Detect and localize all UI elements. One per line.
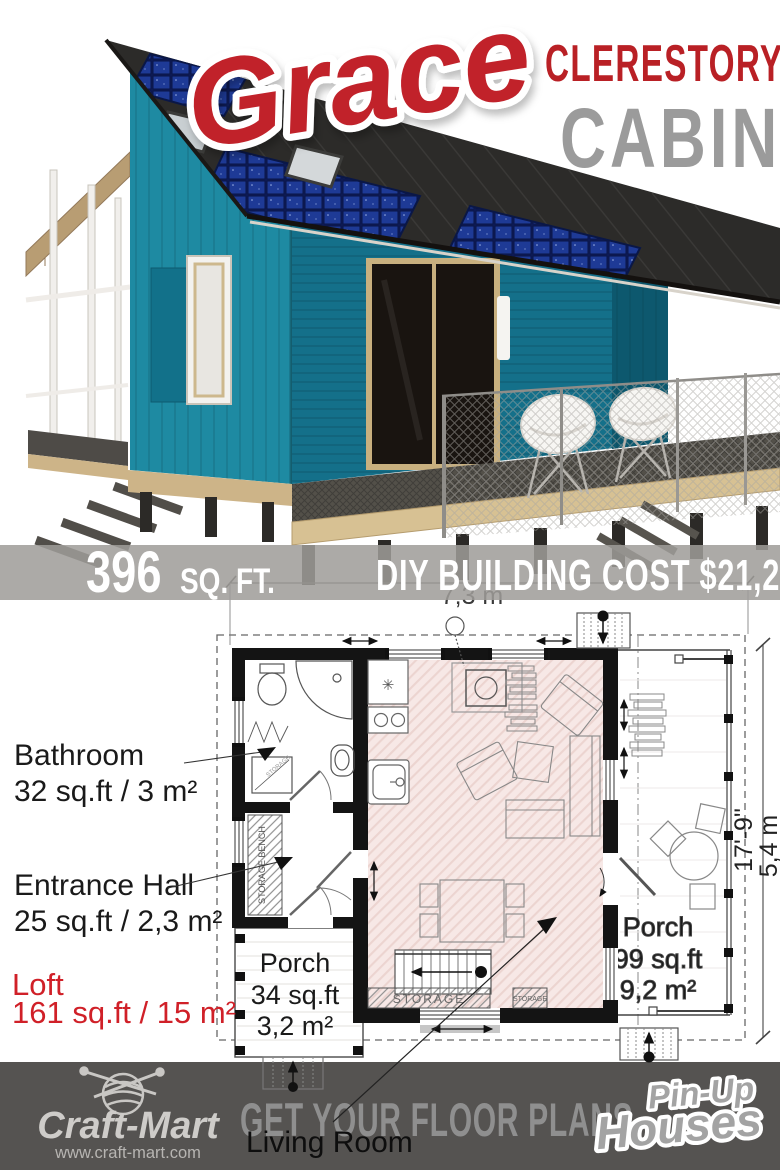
roof-outline-dashed	[217, 635, 745, 1040]
wood-stove	[446, 617, 522, 712]
dimension-height: 17'-9" 5,4 m	[730, 638, 780, 1044]
stove-icon	[368, 707, 408, 733]
loft-name: Loft	[12, 967, 64, 1002]
storage-strips: STORAGE STORAGE	[368, 988, 547, 1008]
porch-large-size-ft: 99 sq.ft	[614, 944, 703, 974]
dim-height-ft-label: 17'-9"	[730, 808, 758, 872]
porch-small-name: Porch	[260, 948, 331, 978]
armchair-icon	[540, 674, 604, 737]
sink-icon	[331, 745, 354, 776]
hall-name: Entrance Hall	[14, 869, 194, 902]
porch-large-size-m: 9,2 m²	[620, 975, 697, 1005]
craft-mart-logo: Craft-Mart www.craft-mart.com	[18, 1064, 238, 1168]
curtain	[497, 296, 510, 360]
walls	[232, 648, 618, 1023]
storage-label: STORAGE	[393, 992, 465, 1006]
dining-set	[420, 880, 524, 942]
bathroom-fixtures	[248, 661, 354, 793]
cooktop-symbol: ✳	[382, 677, 395, 694]
brand-url: www.craft-mart.com	[54, 1144, 201, 1162]
title-cabin: CABIN	[560, 90, 780, 187]
wire-fence	[442, 373, 780, 538]
area-unit: SQ. FT.	[180, 562, 275, 602]
porch-large-name: Porch	[623, 912, 694, 942]
partner-line2: Houses	[594, 1093, 764, 1159]
porch-small-size-m: 3,2 m²	[257, 1011, 334, 1041]
armchair-icon	[456, 741, 518, 801]
sofa-icon	[570, 736, 600, 836]
coffee-table-icon	[513, 742, 554, 783]
living-room-floor	[368, 660, 603, 1008]
shelves	[505, 666, 537, 731]
porch-small-size-ft: 34 sq.ft	[251, 980, 340, 1010]
porch-small-label: Porch 34 sq.ft 3,2 m²	[251, 948, 340, 1041]
footer-bar: Craft-Mart www.craft-mart.com GET YOUR F…	[0, 1062, 780, 1170]
storage-small-label: STORAGE	[513, 996, 547, 1003]
porch-posts	[724, 655, 733, 1013]
leader-arrow	[537, 917, 557, 934]
room-labels: Bathroom 32 sq.ft / 3 m² Entrance Hall 2…	[12, 739, 293, 1030]
right-porch: Porch 99 sq.ft 9,2 m²	[614, 650, 733, 1015]
storage-bench: STORAGE BENCH	[248, 815, 282, 915]
bookshelf	[628, 694, 666, 756]
area-number: 396	[86, 539, 161, 606]
leader-arrow	[257, 747, 276, 761]
top-steps	[577, 611, 630, 649]
storage-bench-label: STORAGE BENCH	[257, 826, 267, 904]
bathroom-name: Bathroom	[14, 739, 144, 772]
toilet-icon	[260, 664, 284, 673]
shower-icon	[296, 661, 352, 719]
bath-cabinet	[252, 757, 292, 793]
loft-stairs	[395, 950, 491, 994]
kitchen	[368, 660, 409, 804]
title-clerestory: CLERESTORY	[545, 34, 780, 94]
window-shutter	[151, 268, 187, 402]
pin-up-houses-logo: Pin-Up Houses	[580, 1064, 780, 1168]
dim-height-m-label: 5,4 m	[755, 815, 780, 878]
bathroom-size: 32 sq.ft / 3 m²	[14, 775, 197, 808]
leader-arrow	[274, 857, 293, 870]
loft-size: 161 sq.ft / 15 m²	[12, 995, 236, 1030]
cost-text: DIY BUILDING COST $21,200	[376, 551, 780, 601]
living-furniture	[420, 674, 604, 942]
info-banner: 396 SQ. FT. DIY BUILDING COST $21,200	[0, 545, 780, 600]
porch-large-label: Porch 99 sq.ft 9,2 m²	[614, 912, 703, 1005]
kitchen-sink-icon	[368, 760, 409, 804]
cabinet-label: STORAGE	[265, 755, 291, 778]
brand-name: Craft-Mart	[37, 1105, 220, 1147]
porch-posts	[235, 934, 363, 1055]
towel-rack	[248, 722, 288, 742]
hall-size: 25 sq.ft / 2,3 m²	[14, 905, 222, 938]
left-porch: Porch 34 sq.ft 3,2 m²	[235, 928, 363, 1057]
bottom-right-steps	[620, 1028, 678, 1063]
pin-image: Grace CLERESTORY CABIN Craft-Mart www.cr…	[0, 0, 780, 1170]
living-room-label: Living Room	[246, 1126, 413, 1160]
porch-table-set	[650, 804, 725, 909]
bench-icon	[506, 800, 564, 838]
windows-and-doors	[232, 641, 655, 1033]
